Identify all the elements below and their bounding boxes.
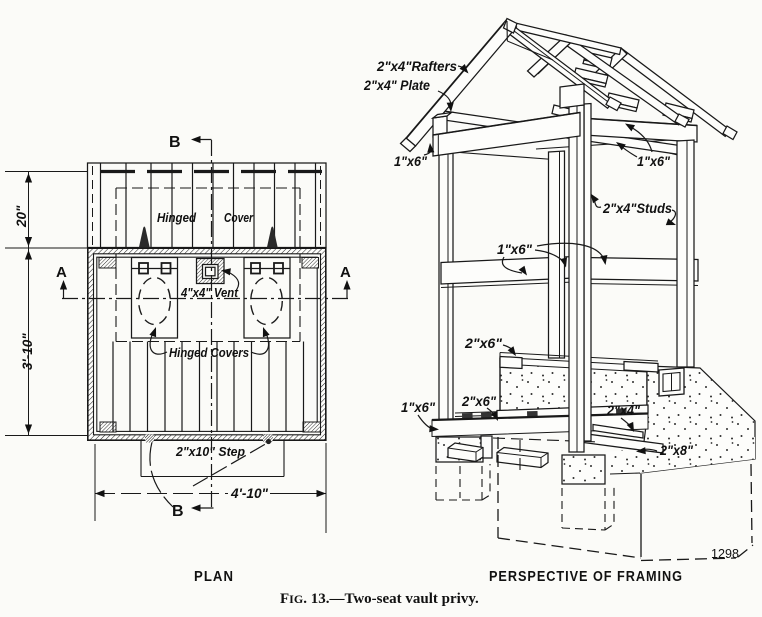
svg-text:1"x6": 1"x6" — [401, 400, 436, 415]
svg-text:A: A — [56, 264, 67, 281]
svg-text:B: B — [172, 503, 184, 520]
svg-text:2"x6": 2"x6" — [461, 394, 497, 409]
svg-text:3'-10": 3'-10" — [20, 333, 35, 370]
svg-text:1"x6": 1"x6" — [637, 154, 671, 169]
svg-text:4'-10": 4'-10" — [230, 486, 269, 501]
svg-text:2"x4": 2"x4" — [606, 403, 640, 418]
svg-text:A: A — [340, 264, 351, 281]
svg-text:2"x10" Step: 2"x10" Step — [175, 444, 245, 459]
svg-text:20": 20" — [14, 205, 29, 228]
svg-text:1"x6": 1"x6" — [497, 242, 533, 257]
svg-text:1"x6": 1"x6" — [394, 154, 428, 169]
svg-text:2"x8": 2"x8" — [659, 443, 693, 458]
svg-text:2"x4"Rafters: 2"x4"Rafters — [376, 59, 457, 74]
svg-text:2"x4"Studs: 2"x4"Studs — [602, 201, 672, 216]
svg-text:Cover: Cover — [224, 210, 254, 225]
svg-text:FIG. 13.—Two-seat vault privy.: FIG. 13.—Two-seat vault privy. — [280, 591, 479, 607]
svg-text:Hinged Covers: Hinged Covers — [169, 345, 249, 360]
svg-text:2"x6": 2"x6" — [464, 336, 503, 351]
svg-text:PLAN: PLAN — [194, 568, 234, 585]
svg-text:Hinged: Hinged — [157, 210, 197, 225]
svg-text:PERSPECTIVE OF FRAMING: PERSPECTIVE OF FRAMING — [489, 569, 683, 585]
svg-text:B: B — [169, 134, 181, 151]
svg-text:2"x4" Plate: 2"x4" Plate — [363, 78, 430, 93]
svg-text:1298: 1298 — [711, 546, 739, 561]
